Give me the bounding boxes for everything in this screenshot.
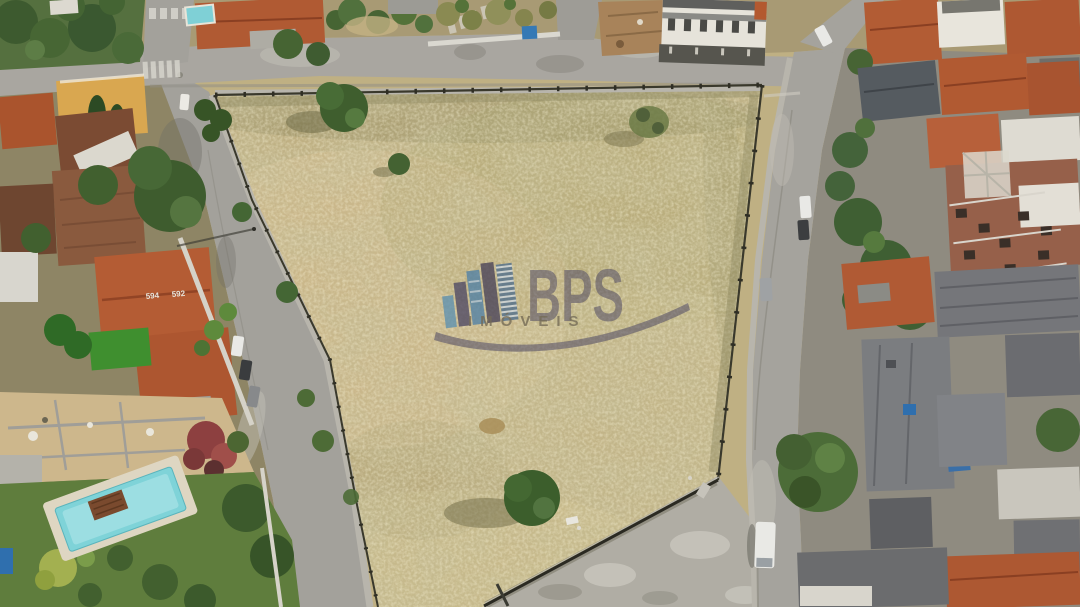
roof [864, 0, 942, 65]
white-building [0, 252, 38, 302]
brand-subtitle: IMÓVEIS [468, 312, 587, 330]
aerial-photo-canvas: 594 592 [0, 0, 1080, 607]
gray-building [388, 0, 438, 14]
blue-water-tank [903, 404, 916, 415]
car [759, 278, 772, 302]
dirt-patch [479, 418, 505, 434]
roof [1001, 116, 1080, 164]
car [797, 220, 809, 241]
sparse-tree [629, 106, 669, 138]
roof [937, 393, 1007, 467]
house-number: 594 [145, 291, 160, 301]
blue-bin [0, 548, 13, 574]
car [799, 196, 812, 219]
roof [1005, 0, 1080, 58]
top-mid-vertical-street [556, 0, 602, 40]
car [179, 94, 189, 111]
artificial-turf [88, 327, 151, 370]
roof [1005, 333, 1080, 398]
roof [938, 53, 1030, 115]
roof [1027, 61, 1080, 116]
aerial-photo: 594 592 [0, 0, 1080, 607]
house-number: 592 [171, 289, 186, 299]
small-pool [185, 5, 215, 26]
dirt-lot [598, 0, 668, 56]
roof [997, 467, 1080, 520]
roof [934, 264, 1080, 337]
brick-construction-building [945, 147, 1080, 280]
roof [0, 93, 57, 150]
townhouses [659, 0, 767, 66]
delivery-van [754, 522, 776, 569]
blue-water-tank [522, 26, 538, 40]
roof [869, 497, 933, 549]
